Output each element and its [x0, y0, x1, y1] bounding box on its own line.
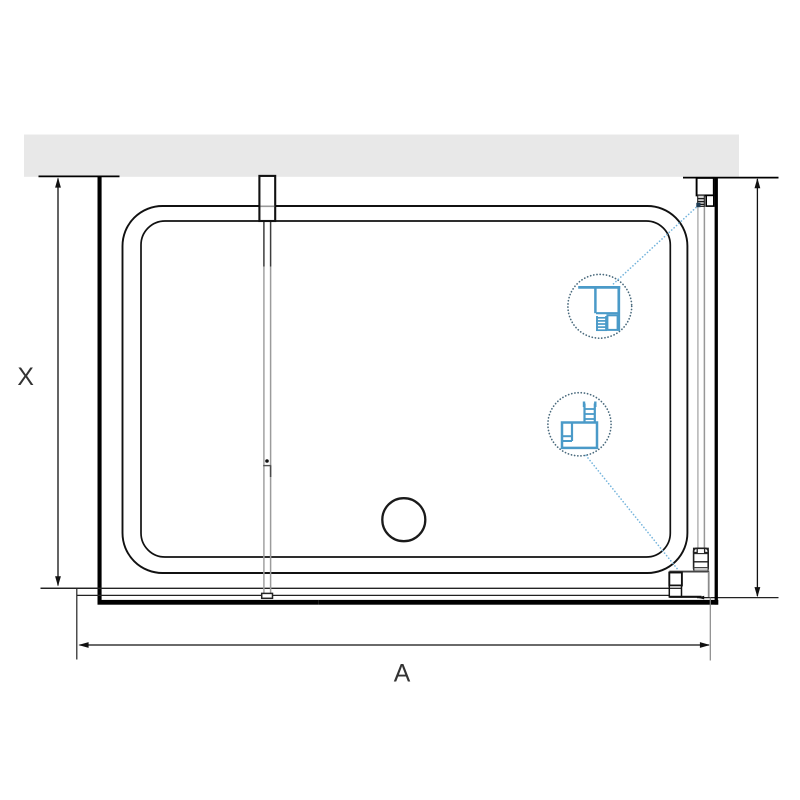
svg-text:A: A [394, 661, 411, 688]
svg-text:X: X [17, 364, 34, 391]
